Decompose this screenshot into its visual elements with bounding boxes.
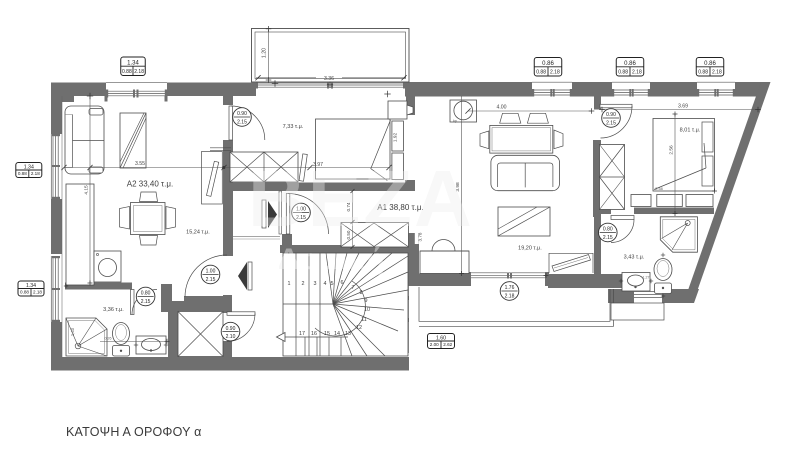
svg-text:1.20: 1.20 bbox=[262, 48, 268, 58]
svg-text:2.00: 2.00 bbox=[430, 342, 439, 347]
svg-text:3.36: 3.36 bbox=[324, 76, 334, 82]
svg-text:2.58: 2.58 bbox=[655, 187, 662, 191]
svg-text:1.34: 1.34 bbox=[127, 61, 139, 67]
svg-text:4: 4 bbox=[324, 281, 327, 287]
svg-text:0.88: 0.88 bbox=[536, 69, 546, 75]
svg-text:2.18: 2.18 bbox=[632, 69, 642, 75]
svg-text:7,33 τ.μ.: 7,33 τ.μ. bbox=[283, 124, 304, 130]
svg-text:6: 6 bbox=[341, 280, 344, 286]
svg-text:0.90: 0.90 bbox=[237, 111, 247, 117]
svg-text:17: 17 bbox=[299, 331, 305, 337]
svg-text:10: 10 bbox=[364, 307, 370, 313]
svg-text:2.18: 2.18 bbox=[505, 294, 515, 300]
svg-text:1.92: 1.92 bbox=[393, 133, 399, 143]
svg-text:15: 15 bbox=[324, 331, 330, 337]
svg-text:13: 13 bbox=[345, 331, 351, 337]
svg-text:0.86: 0.86 bbox=[704, 61, 716, 67]
svg-text:kp: kp bbox=[453, 119, 457, 123]
svg-text:11: 11 bbox=[361, 317, 367, 323]
svg-text:1.34: 1.34 bbox=[26, 283, 36, 289]
svg-text:3,36 τ.μ.: 3,36 τ.μ. bbox=[103, 307, 124, 313]
svg-text:2: 2 bbox=[302, 281, 305, 287]
svg-text:3,43 τ.μ.: 3,43 τ.μ. bbox=[624, 255, 645, 261]
svg-text:3.55: 3.55 bbox=[135, 161, 145, 167]
svg-text:0.80: 0.80 bbox=[141, 291, 151, 297]
svg-text:0.86: 0.86 bbox=[624, 61, 636, 67]
svg-text:0.88: 0.88 bbox=[698, 69, 708, 75]
svg-text:2.18: 2.18 bbox=[31, 171, 40, 176]
svg-text:0.90: 0.90 bbox=[226, 326, 236, 332]
svg-text:4.15: 4.15 bbox=[84, 185, 90, 195]
svg-text:2.15: 2.15 bbox=[237, 120, 247, 126]
svg-text:1.60: 1.60 bbox=[436, 335, 446, 341]
svg-text:1.00: 1.00 bbox=[206, 269, 216, 275]
svg-text:2.18: 2.18 bbox=[134, 69, 144, 75]
svg-text:4.00: 4.00 bbox=[496, 105, 506, 111]
svg-text:8: 8 bbox=[360, 290, 363, 296]
svg-text:3.69: 3.69 bbox=[678, 104, 688, 110]
svg-text:15,24 τ.μ.: 15,24 τ.μ. bbox=[186, 230, 210, 236]
svg-text:A2 33,40 τ.μ.: A2 33,40 τ.μ. bbox=[127, 180, 173, 189]
svg-text:0.88: 0.88 bbox=[18, 171, 27, 176]
svg-text:5: 5 bbox=[331, 281, 334, 287]
svg-text:2.56: 2.56 bbox=[669, 145, 675, 155]
svg-text:2.15: 2.15 bbox=[606, 121, 616, 127]
svg-text:12: 12 bbox=[356, 325, 362, 331]
svg-text:0.88: 0.88 bbox=[122, 69, 132, 75]
svg-text:19,20 τ.μ.: 19,20 τ.μ. bbox=[518, 246, 542, 252]
svg-text:2.15: 2.15 bbox=[603, 235, 613, 241]
svg-text:2.18: 2.18 bbox=[33, 289, 42, 294]
svg-text:3: 3 bbox=[314, 281, 317, 287]
svg-text:0.80: 0.80 bbox=[603, 227, 613, 233]
svg-text:0.86: 0.86 bbox=[542, 61, 554, 67]
svg-text:8,01 τ.μ.: 8,01 τ.μ. bbox=[680, 128, 701, 134]
svg-text:7: 7 bbox=[352, 285, 355, 291]
svg-text:2.15: 2.15 bbox=[141, 299, 151, 305]
svg-text:16: 16 bbox=[311, 331, 317, 337]
svg-text:0,26: 0,26 bbox=[105, 337, 112, 341]
svg-text:Δομική: Δομική bbox=[278, 243, 386, 276]
svg-text:9: 9 bbox=[365, 298, 368, 304]
svg-text:2.18: 2.18 bbox=[550, 69, 560, 75]
svg-text:ΚΑΤΟΨΗ Α ΟΡΟΦΟΥ α: ΚΑΤΟΨΗ Α ΟΡΟΦΟΥ α bbox=[66, 425, 202, 439]
svg-text:0.90: 0.90 bbox=[606, 112, 616, 118]
svg-text:2.15: 2.15 bbox=[206, 277, 216, 283]
svg-text:2.18: 2.18 bbox=[712, 69, 722, 75]
svg-text:14: 14 bbox=[334, 331, 340, 337]
svg-text:1.76: 1.76 bbox=[505, 285, 515, 291]
svg-text:0.88: 0.88 bbox=[618, 69, 628, 75]
svg-text:0.88: 0.88 bbox=[20, 289, 29, 294]
svg-text:1,40: 1,40 bbox=[70, 327, 75, 336]
svg-text:1.27: 1.27 bbox=[643, 276, 650, 280]
svg-text:2.10: 2.10 bbox=[226, 334, 236, 340]
svg-text:ΒΕΖΑ: ΒΕΖΑ bbox=[248, 154, 474, 243]
svg-text:1.34: 1.34 bbox=[24, 164, 34, 170]
svg-text:1: 1 bbox=[288, 281, 291, 287]
svg-text:2.62: 2.62 bbox=[443, 342, 452, 347]
